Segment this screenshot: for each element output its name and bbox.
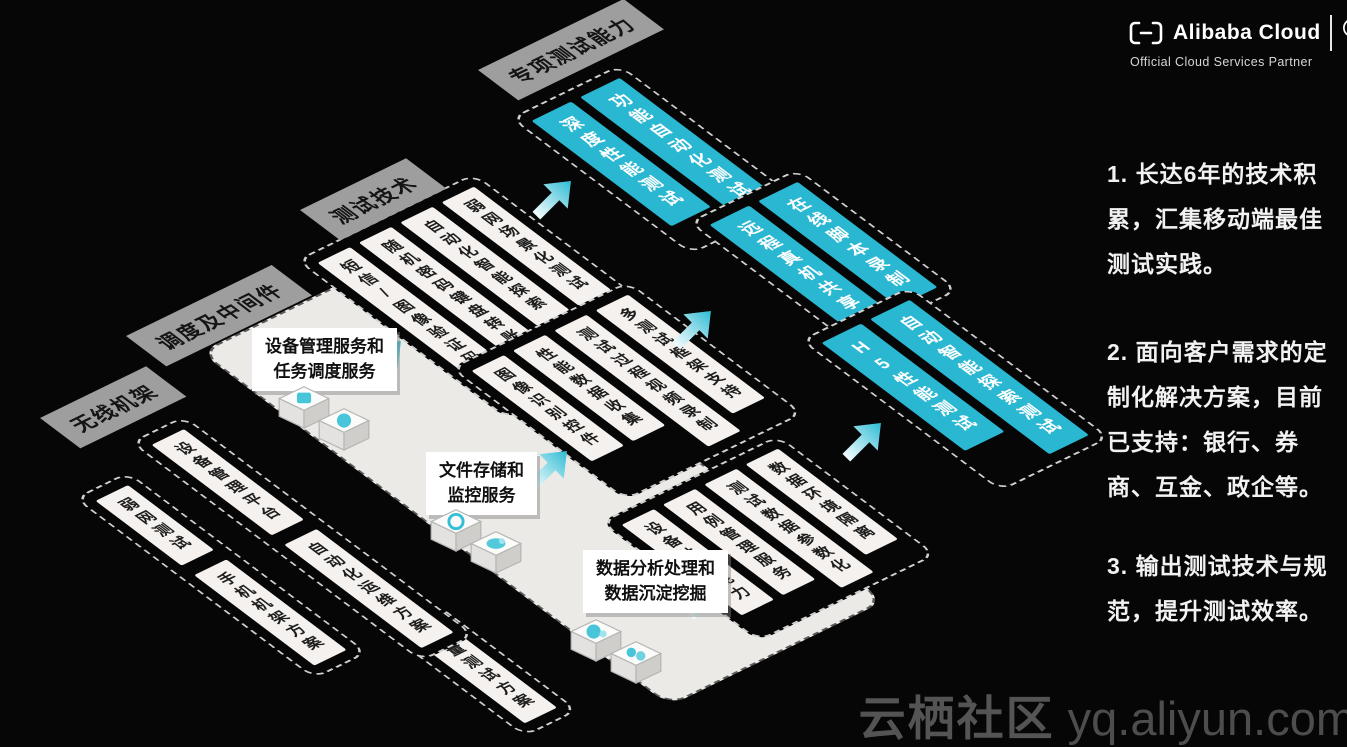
arrow-icon — [832, 412, 894, 470]
partner-subtitle: Official Cloud Services Partner — [1130, 55, 1347, 69]
olympic-rings-icon — [1341, 14, 1347, 52]
note-1: 1. 长达6年的技术积累，汇集移动端最佳测试实践。 — [1107, 152, 1345, 287]
arrow-icon — [662, 300, 724, 358]
callout-file-storage: 文件存储和 监控服务 — [426, 452, 537, 515]
brand-text: Alibaba Cloud — [1173, 21, 1321, 45]
callout-line: 文件存储和 — [439, 459, 524, 484]
cube-icon — [470, 530, 522, 576]
cube-pair — [278, 385, 378, 465]
note-2: 2. 面向客户需求的定制化解决方案，目前已支持：银行、券商、互金、政企等。 — [1107, 330, 1345, 509]
alibaba-bracket-icon — [1128, 19, 1164, 47]
note-3: 3. 输出测试技术与规范，提升测试效率。 — [1107, 544, 1345, 634]
callout-device-mgmt: 设备管理服务和 任务调度服务 — [252, 328, 397, 391]
watermark-site: 云栖社区 — [859, 692, 1055, 745]
cube-pair — [430, 508, 530, 588]
cube-icon — [318, 407, 370, 453]
callout-line: 数据分析处理和 — [596, 557, 715, 582]
bar: 弱网测试 — [96, 485, 214, 566]
watermark: 云栖社区 yq.aliyun.com — [859, 680, 1347, 747]
cube-pair — [570, 618, 670, 698]
callout-data-analysis: 数据分析处理和 数据沉淀挖掘 — [583, 550, 728, 613]
logo-divider — [1330, 15, 1332, 51]
callout-line: 设备管理服务和 — [265, 335, 384, 360]
arrow-icon — [522, 170, 584, 228]
cube-icon — [610, 640, 662, 686]
diagram-scene: 弱网测试 手机机架方案 电量测试方案 设备管理平台 自动化运维方案 弱网场景化测… — [0, 0, 1347, 747]
callout-line: 数据沉淀挖掘 — [596, 582, 715, 607]
callout-line: 监控服务 — [439, 484, 524, 509]
callout-line: 任务调度服务 — [265, 360, 384, 385]
alibaba-cloud-logo: Alibaba Cloud Official Cloud Services Pa… — [1128, 14, 1347, 69]
watermark-url: yq.aliyun.com — [1055, 692, 1347, 745]
